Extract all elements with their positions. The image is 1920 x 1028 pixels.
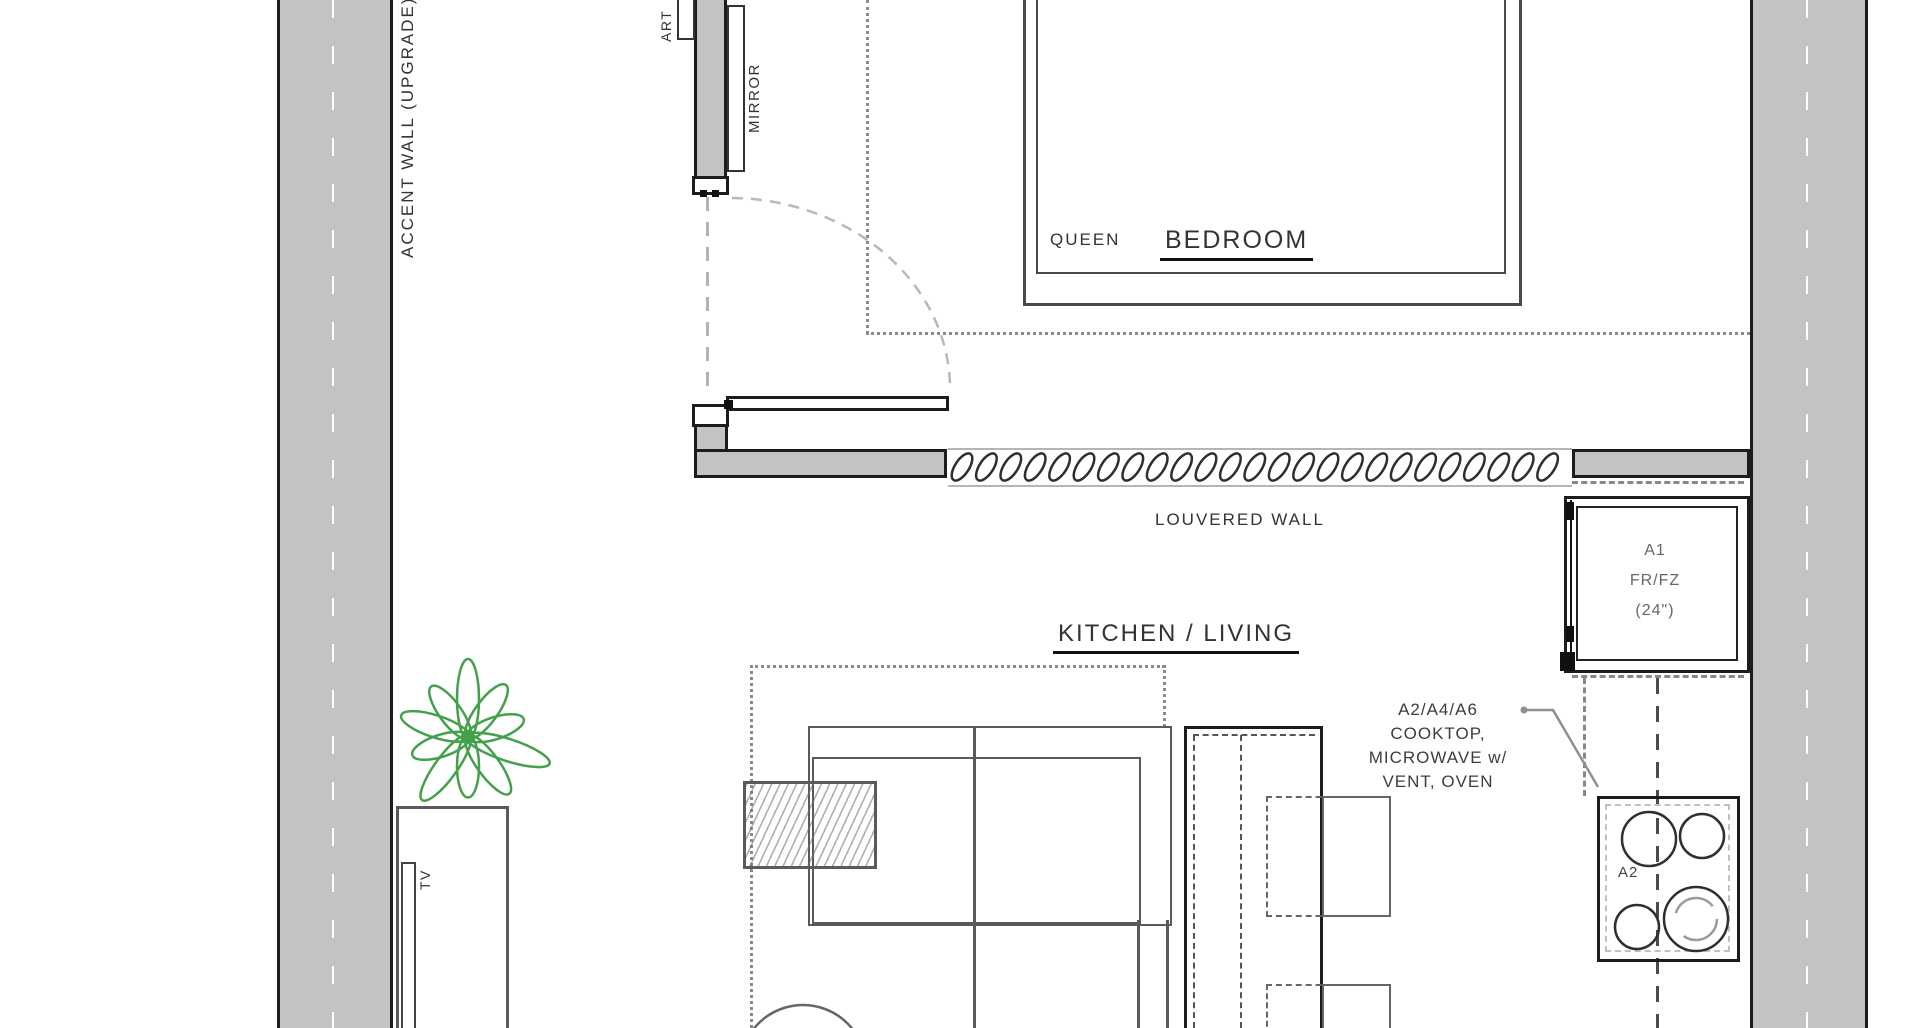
upper-cabinet-dashed-line [1572,481,1744,484]
fridge-label-line3: (24") [1576,596,1734,626]
door-swing-arc [732,198,950,389]
bedroom-boundary-horizontal [866,332,1750,335]
louvered-wall-slats [948,450,1562,484]
cooktop-note-line4: VENT, OVEN [1328,770,1548,794]
louvered-wall-rail-top [948,448,1572,450]
art-label: ART [658,10,674,42]
cooktop-note-line2: COOKTOP, [1328,722,1548,746]
pocket-door-tick [724,400,733,409]
bedroom-boundary-vertical [866,0,869,334]
accent-wall-label: ACCENT WALL (UPGRADE) [398,0,418,258]
mirror-label: MIRROR [746,63,763,133]
louvered-wall-label: LOUVERED WALL [1155,510,1325,530]
pocket-wall-bar [694,449,947,478]
entry-wall-endcap [692,176,729,195]
pocket-door-panel [726,396,949,411]
cooktop-tag: A2 [1618,864,1638,881]
bed-size-label: QUEEN [1050,230,1120,250]
ottoman-hatched [743,781,877,869]
kitchen-boundary-horizontal [750,665,1165,668]
counter-dashed-edge [1583,678,1586,796]
bedroom-room-label: BEDROOM [1160,226,1313,261]
mirror [727,5,745,172]
fridge-hinge-mark [1565,502,1574,520]
fridge-label-line1: A1 [1576,536,1734,566]
bar-stool-solid-part [1322,796,1391,917]
cooktop-note-line1: A2/A4/A6 [1328,698,1548,722]
cooktop-note: A2/A4/A6 COOKTOP, MICROWAVE w/ VENT, OVE… [1328,698,1548,794]
tv-label: TV [417,869,433,890]
sofa-chaise-line [1137,920,1140,1028]
art-piece [677,0,695,40]
dining-table [740,1005,866,1028]
door-leaf-dashed [706,197,709,390]
kitchen-boundary-vertical-right [1163,665,1166,727]
fridge-corner-mark [1560,652,1575,671]
right-wall-centerline [1806,0,1808,1028]
fridge-label-line2: FR/FZ [1576,566,1734,596]
fridge-label: A1 FR/FZ (24") [1576,536,1734,626]
island-dashed-inset-v2 [1240,735,1242,1028]
sofa-divider [973,726,976,1028]
floor-plan: ART MIRROR ACCENT WALL (UPGRADE) QUEEN B… [0,0,1920,1028]
plant-icon [398,659,553,807]
door-hinge-tick [700,190,707,197]
right-wall [1750,0,1868,1028]
kitchen-living-label-text: KITCHEN / LIVING [1053,620,1299,654]
kitchen-living-label: KITCHEN / LIVING [1053,620,1299,654]
island-dashed-inset-h [1193,734,1315,736]
fridge-hinge-mark [1566,626,1574,642]
wall-segment-right-of-louvers [1572,449,1750,478]
cooktop-note-line3: MICROWAVE w/ [1328,746,1548,770]
door-hinge-tick [712,190,719,197]
entry-wall-stub [694,0,727,182]
island-dashed-inset-v1 [1193,735,1195,1028]
left-wall [277,0,393,1028]
sofa-chaise-edge [1166,920,1169,1028]
bar-stool-solid-part [1322,984,1391,1028]
louvered-wall-rail-bottom [948,485,1572,487]
bedroom-room-label-text: BEDROOM [1160,226,1313,261]
tv-screen [401,862,416,1028]
left-wall-centerline [332,0,334,1028]
